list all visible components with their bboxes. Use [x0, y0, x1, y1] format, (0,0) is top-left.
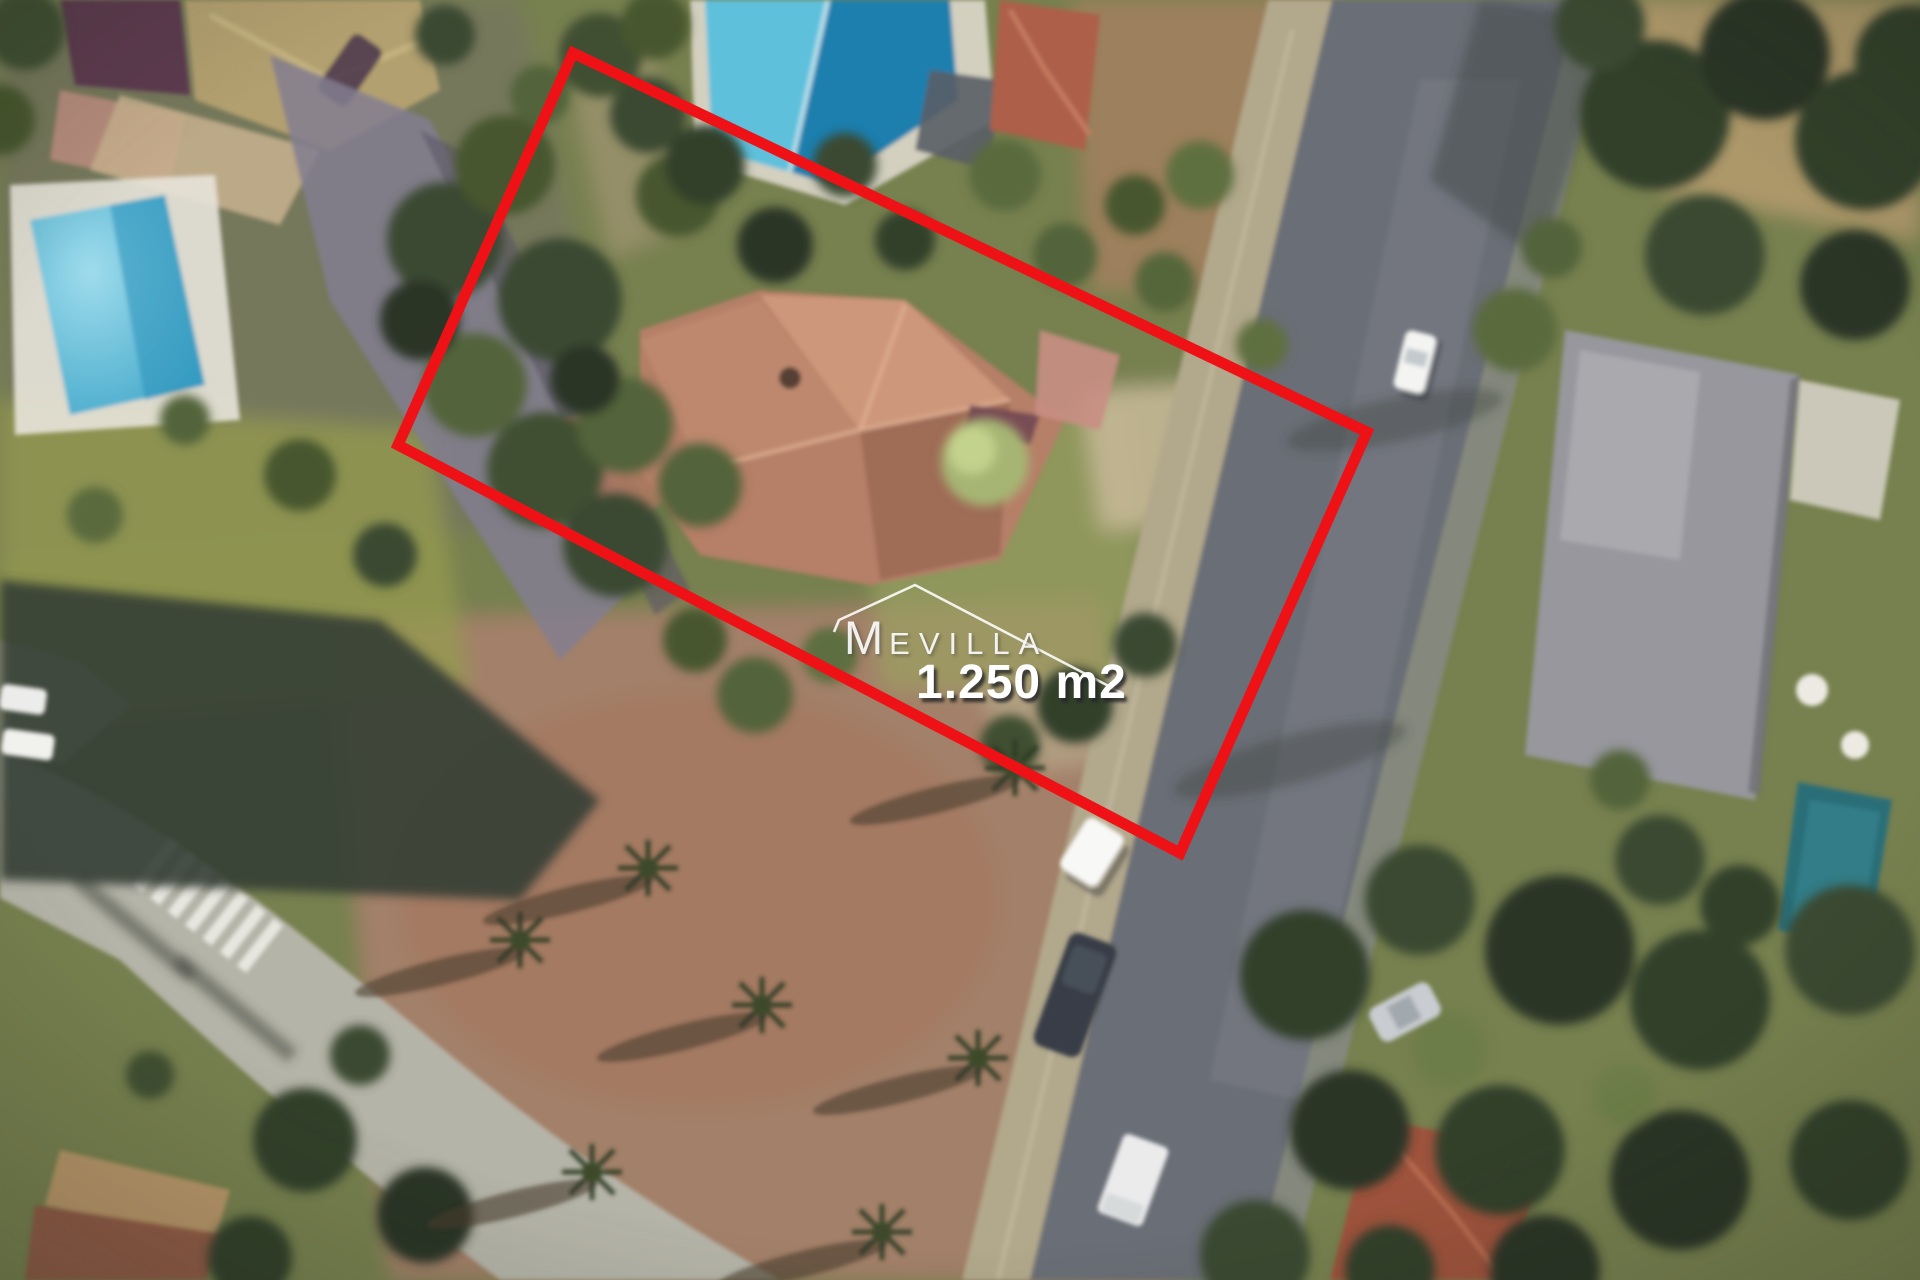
plot-area-label: 1.250 m2 — [916, 655, 1127, 710]
satellite-imagery — [0, 0, 1920, 1280]
vignette — [0, 0, 1920, 1280]
aerial-photo: MEVILLA 1.250 m2 — [0, 0, 1920, 1280]
